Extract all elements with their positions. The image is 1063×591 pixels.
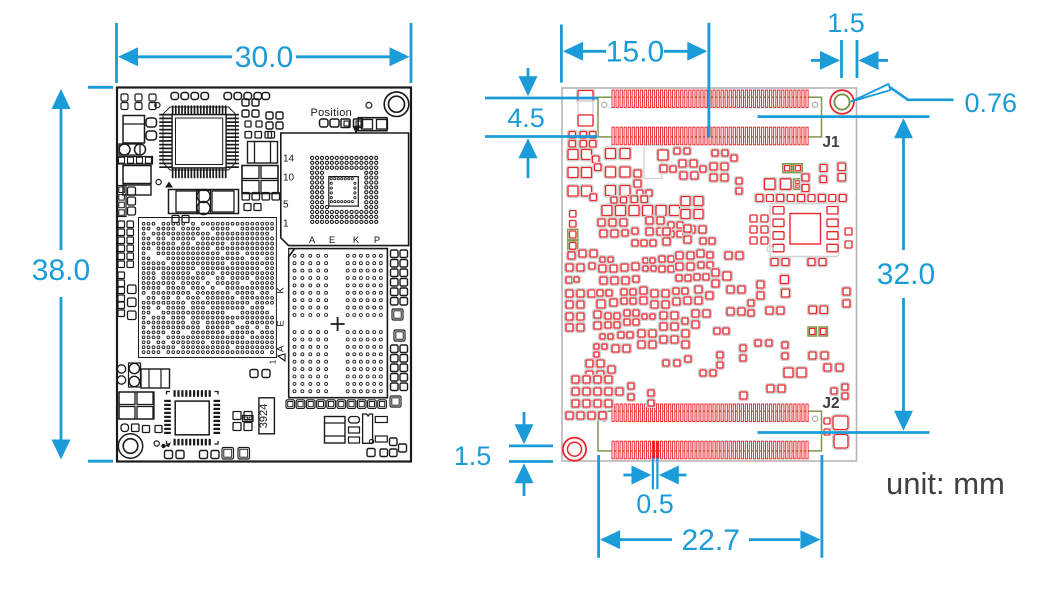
svg-text:22.7: 22.7 xyxy=(682,524,740,557)
svg-text:5: 5 xyxy=(283,200,289,211)
svg-text:10: 10 xyxy=(283,172,295,183)
svg-text:1.5: 1.5 xyxy=(454,441,492,471)
svg-text:4.5: 4.5 xyxy=(507,103,545,133)
svg-text:E: E xyxy=(276,320,287,326)
svg-text:1: 1 xyxy=(268,359,278,364)
svg-text:38.0: 38.0 xyxy=(32,254,90,287)
svg-text:3924: 3924 xyxy=(258,404,270,428)
svg-text:32.0: 32.0 xyxy=(877,258,935,291)
svg-text:J2: J2 xyxy=(822,395,839,412)
svg-text:14: 14 xyxy=(283,154,295,165)
svg-text:K: K xyxy=(353,235,360,246)
svg-text:unit: mm: unit: mm xyxy=(886,466,1005,501)
svg-text:A: A xyxy=(276,345,287,352)
svg-text:Position: Position xyxy=(311,107,353,119)
svg-text:1: 1 xyxy=(283,219,289,230)
svg-text:P: P xyxy=(374,235,380,246)
svg-text:1.5: 1.5 xyxy=(827,8,865,38)
svg-text:E: E xyxy=(329,235,335,246)
svg-text:0.76: 0.76 xyxy=(965,88,1018,118)
svg-text:A: A xyxy=(309,235,316,246)
svg-text:30.0: 30.0 xyxy=(235,41,293,74)
svg-text:15.0: 15.0 xyxy=(606,36,664,69)
svg-text:J1: J1 xyxy=(822,134,840,151)
svg-text:K: K xyxy=(276,287,287,294)
svg-text:0.5: 0.5 xyxy=(636,489,674,519)
